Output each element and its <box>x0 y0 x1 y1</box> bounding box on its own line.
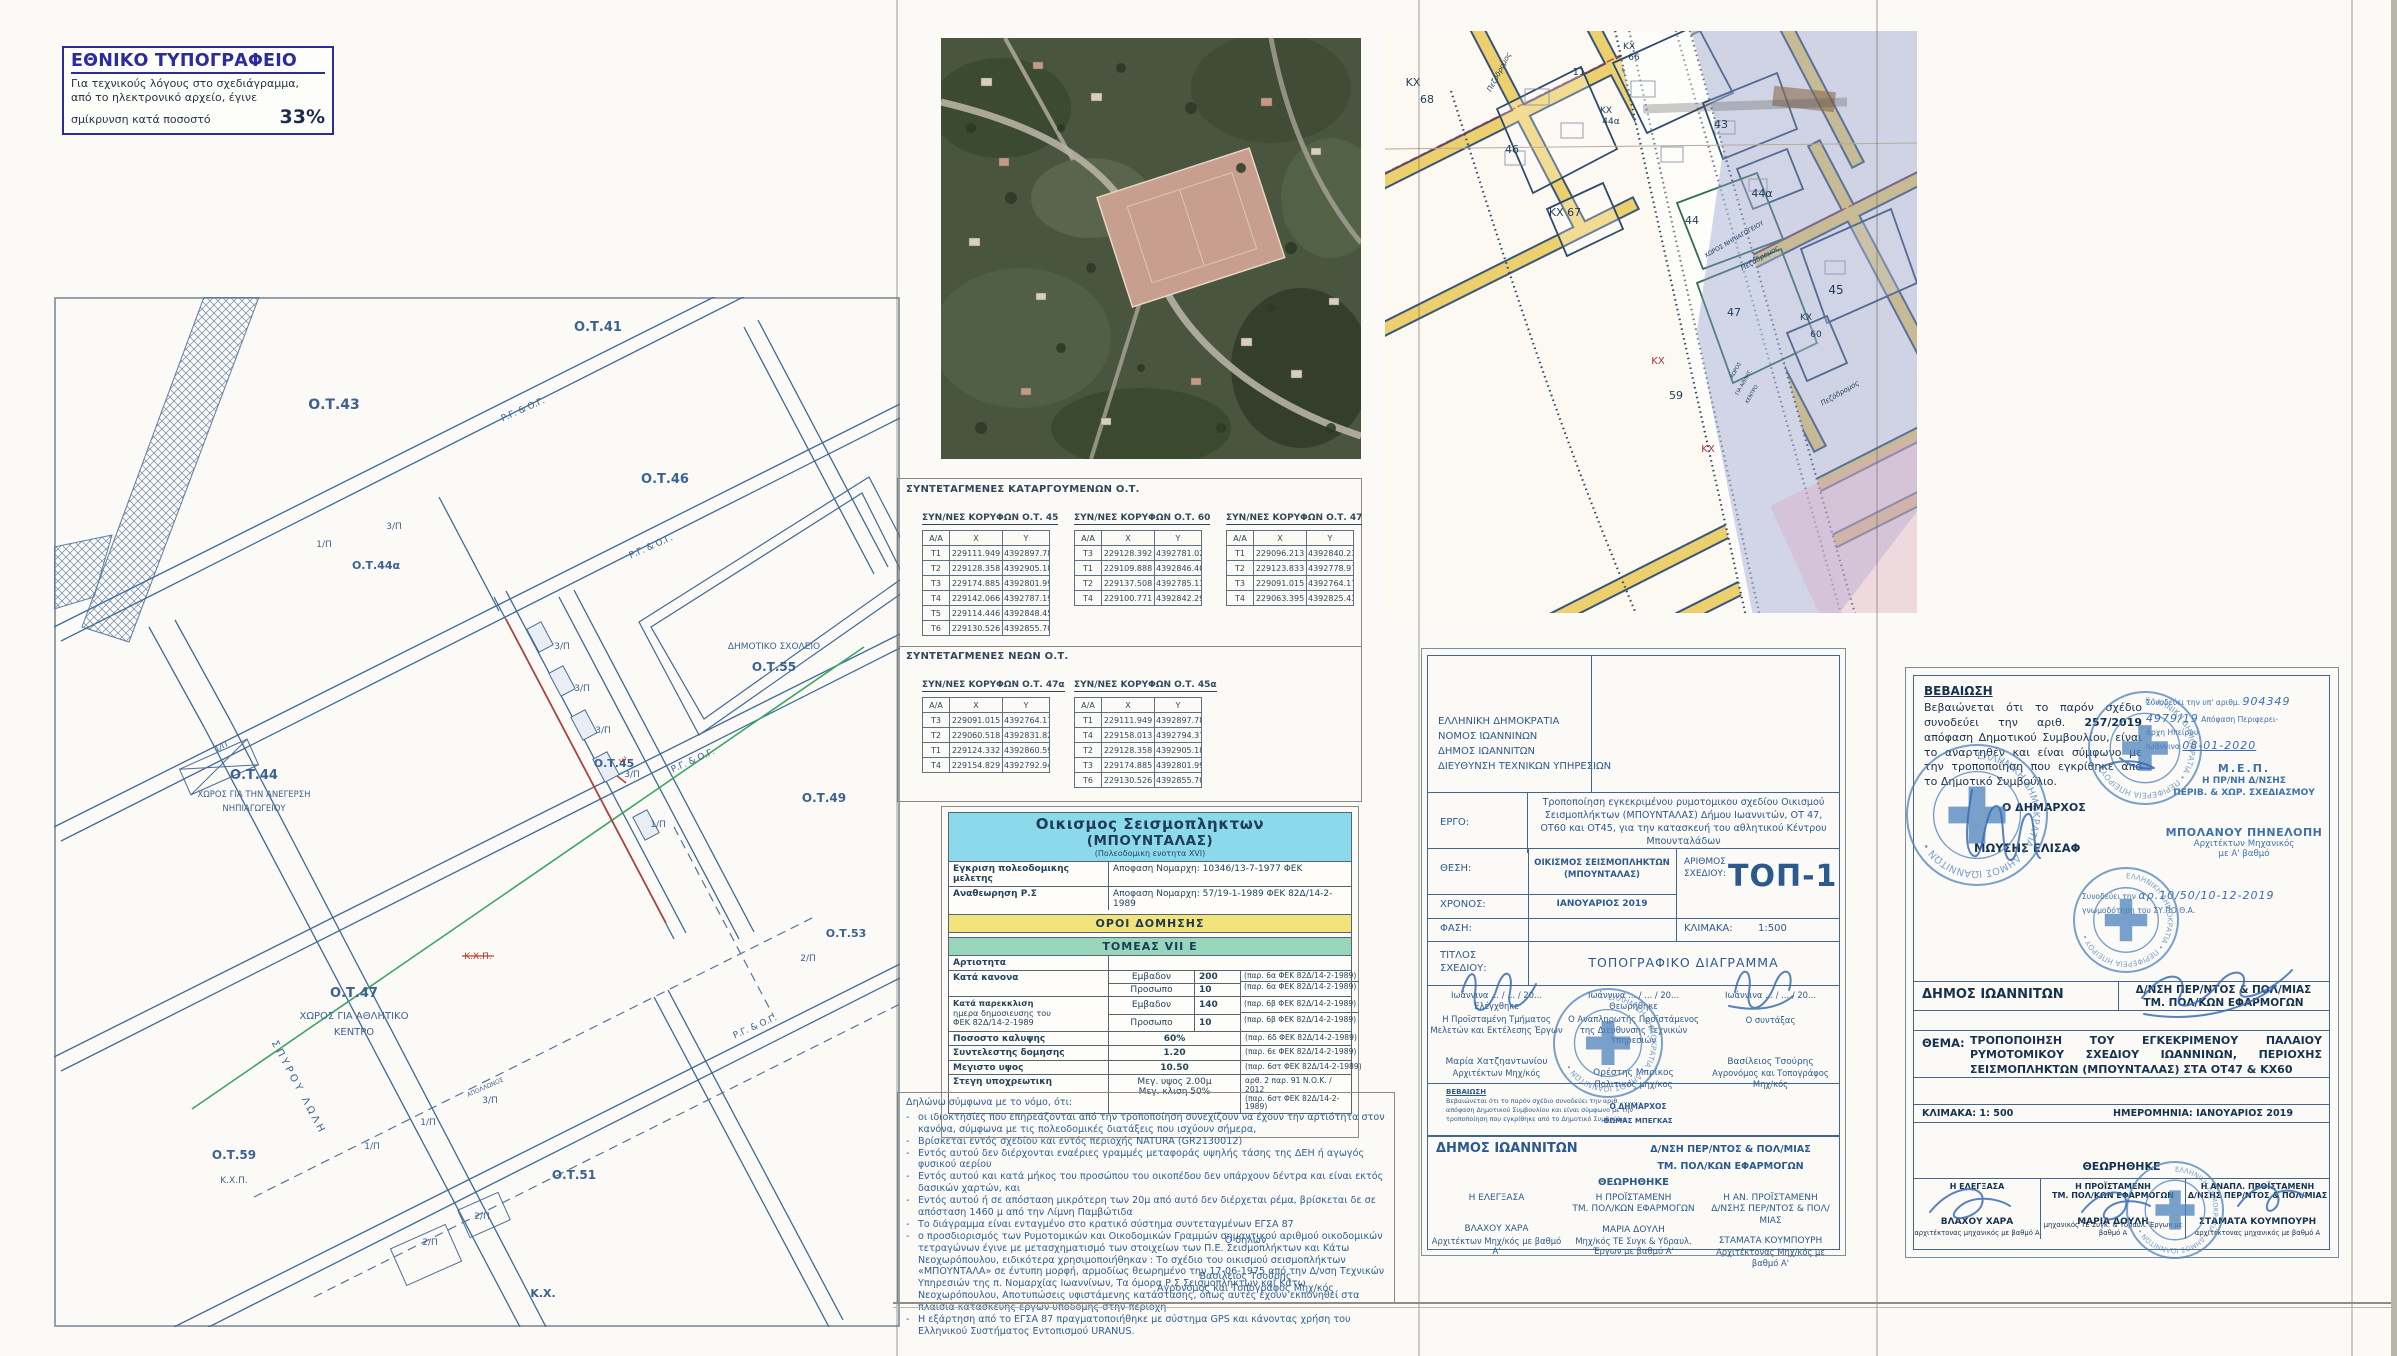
aerial-photo <box>941 38 1361 459</box>
coordinate-table: ΣΥΝ/ΝΕΣ ΚΟΡΥΦΩΝ Ο.Τ. 45αΑ/ΑΧΥΤ1229111.94… <box>1074 672 1202 788</box>
map-label: 1/Π <box>316 540 332 550</box>
title-block: ΕΛΛΗΝΙΚΗ ΔΗΜΟΚΡΑΤΙΑ ΝΟΜΟΣ ΙΩΑΝΝΙΝΩΝ ΔΗΜΟ… <box>1427 655 1840 1250</box>
map-label: Ο.Τ.51 <box>552 1168 596 1182</box>
mep-role: Η ΠΡ/ΝΗ Δ/ΝΣΗΣ <box>2169 776 2319 788</box>
drawing-number-label: ΑΡΙΘΜΟΣ <box>1684 857 1726 869</box>
map-label: 2/Π <box>474 1212 490 1222</box>
project-text: Τροποποίηση εγκεκριμένου ρυμοτομικου σχε… <box>1528 793 1839 853</box>
map-label: Ο.Τ.49 <box>802 791 846 805</box>
coordinate-row: Τ3229174.8854392801.991 <box>1075 758 1202 773</box>
certification-block: ΒΕΒΑΙΩΣΗ Βεβαιώνεται ότι το παρόν σχέδιο… <box>1913 675 2330 1250</box>
region-note-number: 904349 <box>2243 695 2291 708</box>
map-label: 66 <box>1628 53 1640 63</box>
kanona-value-2: 10 <box>1195 984 1240 996</box>
certification-text: απόφαση Δημοτικού Συμβουλίου, είναι το α… <box>1924 731 2142 789</box>
declaration-bullet: -Εντός αυτού δεν διέρχονται εναέριες γρα… <box>906 1148 1386 1172</box>
map-label: ΚΧ <box>1600 106 1612 116</box>
terms-band: ΟΡΟΙ ΔΟΜΗΣΗΣ <box>949 914 1351 933</box>
map-label: ΣΠΥΡΟΥ ΛΩΛΗ <box>269 1039 328 1137</box>
agency-block: ΕΛΛΗΝΙΚΗ ΔΗΜΟΚΡΑΤΙΑ ΝΟΜΟΣ ΙΩΑΝΝΙΝΩΝ ΔΗΜΟ… <box>1438 714 1611 774</box>
declarant-title: Αγρονόμος και Τοπογράφος Μηχ/κός <box>1157 1283 1334 1295</box>
approval-label: Εγκριση πολεοδομικης μελετης <box>949 862 1109 886</box>
parekklisi-label-3: ΦΕΚ 82Δ/14-2-1989 <box>953 1018 1104 1027</box>
coverage-value: 60% <box>1109 1032 1241 1045</box>
map-label: Ο.Τ.46 <box>641 472 689 487</box>
map-label: Κ.Χ. <box>530 1287 555 1300</box>
opinion-text: γνωμοδότηση του ΣΥ.ΠΟ.Θ.Α. <box>2082 905 2312 916</box>
green-boundary-line <box>192 647 864 1109</box>
parekklisi-value-2: 10 <box>1195 1015 1240 1031</box>
map-label: Κ.Χ.Π. <box>220 1176 247 1186</box>
opinion-text: Συνοδεύει την <box>2082 892 2136 901</box>
approver-name: ΒΛΑΧΟΥ ΧΑΡΑ <box>1914 1217 2040 1227</box>
agency-line: ΔΙΕΥΘΥΝΣΗ ΤΕΧΝΙΚΩΝ ΥΠΗΡΕΣΙΩΝ <box>1438 759 1611 774</box>
kanona-cite-1: (παρ. 6α ΦΕΚ 82Δ/14-2-1989) <box>1241 971 1359 983</box>
coverage-label: Ποσοστο καλυψης <box>949 1032 1109 1045</box>
coordinate-table: ΣΥΝ/ΝΕΣ ΚΟΡΥΦΩΝ Ο.Τ. 47Α/ΑΧΥΤ1229096.213… <box>1226 505 1354 636</box>
region-note-text: Συνοδεύει την υπ' αριθμ. <box>2146 698 2240 707</box>
map-label: 1/Π <box>364 1142 380 1152</box>
map-label: Ο.Τ.44 <box>230 768 278 783</box>
settlement-title: Οικισμος Σεισμοπληκτων <box>949 815 1351 833</box>
coordinate-row: Τ4229142.0664392787.194 <box>923 591 1050 606</box>
sig-status: Θεωρήθηκε <box>1565 1001 1702 1012</box>
mayor-label-small: Ο ΔΗΜΑΡΧΟΣ <box>1578 1102 1698 1111</box>
location-text: (ΜΠΟΥΝΤΑΛΑΣ) <box>1528 869 1676 881</box>
mep-block: Μ.Ε.Π. Η ΠΡ/ΝΗ Δ/ΝΣΗΣ ΠΕΡΙΒ. & ΧΩΡ. ΣΧΕΔ… <box>2169 762 2319 800</box>
dashed-block-lines <box>254 827 900 1297</box>
directorate-name: Δ/ΝΣΗ ΠΕΡ/ΝΤΟΣ & ΠΟΛ/ΜΙΑΣ <box>2118 984 2329 997</box>
approver-role: Δ/ΝΣΗΣ ΠΕΡ/ΝΤΟΣ & ΠΟΛ/ΜΙΑΣ <box>1702 1204 1839 1227</box>
project-label: ΕΡΓΟ: <box>1428 793 1528 853</box>
declaration-bullet: -οι ιδιοκτησίες που επηρεάζονται από την… <box>906 1112 1386 1136</box>
coordinate-table: ΣΥΝ/ΝΕΣ ΚΟΡΥΦΩΝ Ο.Τ. 45Α/ΑΧΥΤ1229111.949… <box>922 505 1050 636</box>
date-label: ΧΡΟΝΟΣ: <box>1440 899 1486 910</box>
fold-line <box>2351 0 2353 1356</box>
declaration-bullet: -Εντός αυτού ή σε απόσταση μικρότερη των… <box>906 1195 1386 1219</box>
sig-title: Αρχιτέκτων Μηχ/κός <box>1428 1068 1565 1079</box>
build-factor-label: Συντελεστης δομησης <box>949 1046 1109 1059</box>
coverage-cite: (παρ. 6δ ΦΕΚ 82Δ/14-2-1989) <box>1241 1032 1361 1045</box>
map-label: 44 <box>1685 214 1699 227</box>
approval-value: Αποφαση Νομαρχη: 10346/13-7-1977 ΦΕΚ <box>1109 862 1351 886</box>
map-label: 11 <box>1573 67 1586 78</box>
region-note-city: Ιωάννινα <box>2146 742 2180 751</box>
scale-label: ΚΛΙΜΑΚΑ: <box>1684 923 1733 934</box>
approver-role: Η ΠΡΟΪΣΤΑΜΕΝΗ <box>2041 1182 2185 1191</box>
new-blocks-title: ΣΥΝΤΕΤΑΓΜΕΝΕΣ ΝΕΩΝ Ο.Τ. <box>906 651 1068 662</box>
revision-value: Αποφαση Νομαρχη: 57/19-1-1989 ΦΕΚ 82Δ/14… <box>1109 887 1351 911</box>
max-height-label: Μεγιστο υψος <box>949 1061 1109 1074</box>
map-label: Ο.Τ.43 <box>308 397 360 413</box>
approver-title: Αρχιτέκτων Μηχ/κός με βαθμό Α' <box>1428 1236 1565 1257</box>
map-label: Ο.Τ.47 <box>330 986 378 1001</box>
map-label: ΚΧ 67 <box>1549 206 1581 219</box>
coordinate-row: Τ1229109.8884392846.400 <box>1075 561 1202 576</box>
sig-role: Μελετών και Εκτέλεσης Έργων <box>1428 1025 1565 1036</box>
sig-place: Ιωάννινα ... / ... / 20... <box>1428 990 1565 1001</box>
drawing-title-label: ΤΙΤΛΟΣ <box>1440 949 1487 962</box>
mayor-label: Ο ΔΗΜΑΡΧΟΣ <box>2002 801 2086 814</box>
sig-status: Ελέγχθηκε <box>1428 1001 1565 1012</box>
coordinate-row: Τ2229128.3584392905.187 <box>923 561 1050 576</box>
subject-label: ΘΕΜΑ: <box>1922 1036 1965 1050</box>
declaration-bullet: -Βρίσκεται εντός σχεδίου και εντός περιο… <box>906 1136 1386 1148</box>
mayor-name: ΜΩΥΣΗΣ ΕΛΙΣΑΦ <box>1974 841 2080 855</box>
agency-line: ΝΟΜΟΣ ΙΩΑΝΝΙΝΩΝ <box>1438 729 1611 744</box>
coordinate-table-title: ΣΥΝ/ΝΕΣ ΚΟΡΥΦΩΝ Ο.Τ. 45α <box>1074 680 1217 692</box>
declaration-signature-block: Ο δηλών Βασιλειος Τσούρης Αγρονόμος και … <box>1157 1235 1334 1295</box>
declaration-bullet: -Η εξάρτηση από το ΕΓΣΑ 87 πραγματοποιήθ… <box>906 1314 1386 1338</box>
reduction-stamp-title: ΕΘΝΙΚΟ ΤΥΠΟΓΡΑΦΕΙΟ <box>71 51 325 74</box>
small-cert-title: ΒΕΒΑΙΩΣΗ <box>1446 1088 1642 1097</box>
coordinate-row: Τ4229100.7714392842.290 <box>1075 591 1202 606</box>
region-note-number2: 4979/19 <box>2146 712 2199 725</box>
approver-role: Η ΕΛΕΓΞΑΣΑ <box>1914 1182 2040 1191</box>
architect-title: με Α' βαθμό <box>2154 849 2334 859</box>
coordinate-row: Τ2229123.8334392778.974 <box>1227 561 1354 576</box>
sig-place: Ιωάννινα ... / ... / 20... <box>1702 990 1839 1001</box>
coordinate-table-title: ΣΥΝ/ΝΕΣ ΚΟΡΥΦΩΝ Ο.Τ. 47 <box>1226 513 1362 525</box>
map-label: 3/Π <box>595 726 611 736</box>
map-label: 3/Π <box>386 522 402 532</box>
approved-label: ΘΕΩΡΗΘΗΚΕ <box>1428 1177 1839 1188</box>
map-label: 46 <box>1505 143 1519 156</box>
sig-role: Ο συντάξας <box>1702 1015 1839 1026</box>
map-label: 59 <box>1669 389 1683 402</box>
surveyor-declaration: Δηλώνω σύμφωνα με το νόμο, ότι: -οι ιδιο… <box>897 1092 1395 1304</box>
coordinate-table-title: ΣΥΝ/ΝΕΣ ΚΟΡΥΦΩΝ Ο.Τ. 45 <box>922 513 1058 525</box>
coordinate-table: ΣΥΝ/ΝΕΣ ΚΟΡΥΦΩΝ Ο.Τ. 60Α/ΑΧΥΤ3229128.392… <box>1074 505 1202 636</box>
approver-name: ΜΑΡΙΑ ΔΟΥΛΗ <box>1565 1225 1702 1236</box>
agency-line: ΕΛΛΗΝΙΚΗ ΔΗΜΟΚΡΑΤΙΑ <box>1438 714 1611 729</box>
location-label: ΘΕΣΗ: <box>1440 863 1471 874</box>
mep-title: Μ.Ε.Π. <box>2169 762 2319 776</box>
decision-number: 257/2019 <box>2084 716 2142 729</box>
map-label: Ο.Τ.44α <box>352 559 401 572</box>
approved-label: ΘΕΩΡΗΘΗΚΕ <box>1914 1160 2329 1173</box>
mayor-name-small: ΘΩΜΑΣ ΜΠΕΓΚΑΣ <box>1578 1117 1698 1125</box>
map-label: 60 <box>1810 330 1822 340</box>
approver-title: μηχανικός ΤΕ Συγκ. & Υδραυλ. Έργων με βα… <box>2041 1221 2185 1237</box>
certification-title: ΒΕΒΑΙΩΣΗ <box>1924 684 2142 698</box>
map-label: ΚΧ <box>1800 313 1812 323</box>
map-label: 45 <box>1828 283 1843 297</box>
map-label: 2/Π <box>422 1238 438 1248</box>
architect-title: Αρχιτέκτων Μηχανικός <box>2154 839 2334 849</box>
parekklisi-cite-2: (παρ. 6β ΦΕΚ 82Δ/14-2-1989) <box>1241 1013 1359 1028</box>
reduction-stamp: ΕΘΝΙΚΟ ΤΥΠΟΓΡΑΦΕΙΟ Για τεχνικούς λόγους … <box>62 46 334 135</box>
approver-role: Δ/ΝΣΗΣ ΠΕΡ/ΝΤΟΣ & ΠΟΛ/ΜΙΑΣ <box>2186 1191 2329 1200</box>
planning-unit: (Πολεοδομικη ενοτητα XVI) <box>949 849 1351 858</box>
drawing-number: ΤΟΠ-1 <box>1728 859 1837 894</box>
removed-blocks-tables: ΣΥΝ/ΝΕΣ ΚΟΡΥΦΩΝ Ο.Τ. 45Α/ΑΧΥΤ1229111.949… <box>898 505 1354 636</box>
department-name: ΤΜ. ΠΟΛ/ΚΩΝ ΕΦΑΡΜΟΓΩΝ <box>2118 997 2329 1010</box>
building-terms-table: Οικισμος Σεισμοπληκτων (ΜΠΟΥΝΤΑΛΑΣ) (Πολ… <box>948 812 1352 1114</box>
subject-text: ΤΡΟΠΟΠΟΙΗΣΗ ΤΟΥ ΕΓΚΕΚΡΙΜΕΝΟΥ ΠΑΛΑΙΟΥ ΡΥΜ… <box>1970 1034 2322 1077</box>
declaration-bullet: -Εντός αυτού και κατά μήκος του προσώπου… <box>906 1171 1386 1195</box>
scale-value: ΚΛΙΜΑΚΑ: 1: 500 <box>1922 1108 2013 1119</box>
fold-line <box>896 0 898 1356</box>
map-label: ΚΧ <box>1623 42 1635 52</box>
site-plan-drawing: Ο.Τ.43Ο.Τ.41Ο.Τ.46Ο.Τ.44α1/Π3/ΠΡ.Γ. & Ο.… <box>54 297 900 1327</box>
architect-name: ΜΠΟΛΑΝΟΥ ΠΗΝΕΛΟΠΗ <box>2154 826 2334 839</box>
opinion-annotation: Συνοδεύει την αρ.10/50/10-12-2019 γνωμοδ… <box>2082 888 2312 916</box>
approver-title: Αρχιτέκτονας Μηχ/κός με βαθμό Α' <box>1702 1247 1839 1268</box>
coordinate-row: Τ3229174.8854392801.991 <box>923 576 1050 591</box>
map-label: 68 <box>1420 93 1434 106</box>
map-label: 43 <box>1714 118 1728 131</box>
sig-name: Μαρία Χατζηαντωνίου <box>1428 1057 1565 1068</box>
approver-role: Η ΑΝ. ΠΡΟΪΣΤΑΜΕΝΗ <box>1702 1193 1839 1204</box>
parekklisi-metric-1: Εμβαδον <box>1109 997 1194 1014</box>
fold-line <box>1876 0 1878 1356</box>
map-label: 2/Π <box>800 954 816 964</box>
coordinate-table-title: ΣΥΝ/ΝΕΣ ΚΟΡΥΦΩΝ Ο.Τ. 47α <box>922 680 1065 692</box>
approver-role: Η ΑΝΑΠΛ. ΠΡΟΪΣΤΑΜΕΝΗ <box>2186 1182 2329 1191</box>
sig-role: Η Προϊσταμένη Τμήματος <box>1428 1014 1565 1025</box>
map-label: Ο.Τ.41 <box>574 320 622 335</box>
directorate-name: Δ/ΝΣΗ ΠΕΡ/ΝΤΟΣ & ΠΟΛ/ΜΙΑΣ <box>1628 1141 1833 1158</box>
map-label: Κ.Χ.Π. <box>464 952 491 962</box>
parekklisi-cite-1: (παρ. 6β ΦΕΚ 82Δ/14-2-1989) <box>1241 997 1359 1013</box>
municipality-name: ΔΗΜΟΣ ΙΩΑΝΝΙΤΩΝ <box>1922 987 2064 1002</box>
hatched-road-strip <box>82 297 259 642</box>
approver-role: ΤΜ. ΠΟΛ/ΚΩΝ ΕΦΑΡΜΟΓΩΝ <box>2041 1191 2185 1200</box>
map-label: ΝΗΠΙΑΓΩΓΕΙΟΥ <box>222 804 286 814</box>
coordinate-row: Τ3229091.0154392764.177 <box>923 713 1050 728</box>
sheet-bottom-line <box>893 1307 2391 1308</box>
region-note-date: 08-01-2020 <box>2182 739 2256 752</box>
coordinate-row: Τ6229130.5264392855.705 <box>923 621 1050 636</box>
approver-title: αρχιτέκτονας μηχανικός με βαθμό Α <box>1914 1229 2040 1237</box>
sig-name: Βασίλειος Τσούρης <box>1702 1057 1839 1068</box>
coordinate-row: Τ1229124.3324392860.591 <box>923 743 1050 758</box>
scale-value: 1:500 <box>1758 923 1787 934</box>
coordinate-table: ΣΥΝ/ΝΕΣ ΚΟΡΥΦΩΝ Ο.Τ. 47αΑ/ΑΧΥΤ3229091.01… <box>922 672 1050 788</box>
site-plan-map: Ο.Τ.43Ο.Τ.41Ο.Τ.46Ο.Τ.44α1/Π3/ΠΡ.Γ. & Ο.… <box>54 297 900 1327</box>
old-approved-plan-map: ΚΧ68ΚΧ6611ΚΧ44α4346ΚΧ 6744α44ΧΩΡΟΣ ΝΗΠΙΑ… <box>1385 31 1917 613</box>
declarant-name: Βασιλειος Τσούρης <box>1157 1271 1334 1283</box>
phase-label: ΦΑΣΗ: <box>1440 923 1472 934</box>
coordinate-row: Τ2229060.5184392831.820 <box>923 728 1050 743</box>
roof-height: Μεγ. υψος 2.00μ <box>1113 1077 1236 1087</box>
map-label: ΔΗΜΟΤΙΚΟ ΣΧΟΛΕΙΟ <box>728 642 820 652</box>
coordinate-row: Τ4229154.8294392792.948 <box>923 758 1050 773</box>
coordinate-row: Τ1229096.2134392840.235 <box>1227 546 1354 561</box>
sheet-edge <box>2391 0 2397 1356</box>
coordinate-row: Τ2229137.5084392785.139 <box>1075 576 1202 591</box>
approver-role: Η ΠΡΟΪΣΤΑΜΕΝΗ <box>1565 1193 1702 1204</box>
map-label: Ρ.Γ. & Ο.Γ. <box>628 533 675 561</box>
sheet-bottom-line <box>893 1302 2391 1304</box>
map-label: 44α <box>1602 117 1619 127</box>
reduction-percent: 33% <box>280 106 325 128</box>
revision-label: Αναθεωρηση Ρ.Σ <box>949 887 1109 911</box>
coordinate-row: Τ5229114.4464392848.455 <box>923 606 1050 621</box>
kanona-metric-1: Εμβαδον <box>1109 971 1194 984</box>
coordinate-row: Τ1229111.9494392897.789 <box>1075 713 1202 728</box>
coordinate-row: Τ3229091.0154392764.177 <box>1227 576 1354 591</box>
sig-name: Ορέστης Μπρίκος <box>1565 1068 1702 1079</box>
map-label: 1/Π <box>650 820 666 830</box>
approver-title: Μηχ/κός ΤΕ Συγκ & Υδραυλ. Έργων με βαθμό… <box>1565 1236 1702 1257</box>
coordinate-row: Τ1229111.9494392897.789 <box>923 546 1050 561</box>
map-label: Ο.Τ.55 <box>752 660 796 674</box>
map-label: ΚΧ <box>1651 356 1665 367</box>
sig-col-approved: Ιωάννινα ... / ... / 20... Θεωρήθηκε Ο Α… <box>1565 990 1702 1089</box>
agency-line: ΔΗΜΟΣ ΙΩΑΝΝΙΤΩΝ <box>1438 744 1611 759</box>
map-label: Ο.Τ.53 <box>826 927 867 940</box>
approver-name: ΣΤΑΜΑΤΑ ΚΟΥΜΠΟΥΡΗ <box>2186 1217 2329 1227</box>
approver-title: αρχιτέκτονας μηχανικός με βαθμό Α <box>2186 1229 2329 1237</box>
map-label: 1/Π <box>420 1118 436 1128</box>
map-label: 3/Π <box>624 770 640 780</box>
region-note-text: άρχη Ηπείρου <box>2146 727 2326 738</box>
kanona-cite-2: (παρ. 6α ΦΕΚ 82Δ/14-2-1989) <box>1241 982 1359 993</box>
department-name: ΤΜ. ΠΟΛ/ΚΩΝ ΕΦΑΡΜΟΓΩΝ <box>1628 1158 1833 1175</box>
coordinates-section: ΣΥΝΤΕΤΑΓΜΕΝΕΣ ΚΑΤΑΡΓΟΥΜΕΝΩΝ Ο.Τ. ΣΥΝ/ΝΕΣ… <box>897 478 1362 802</box>
drawing-number-label: ΣΧΕΔΙΟΥ: <box>1684 869 1726 881</box>
reduction-stamp-line2: από το ηλεκτρονικό αρχείο, έγινε <box>71 91 325 105</box>
building-footprints <box>390 622 659 1286</box>
coordinate-row: Τ3229128.3924392781.029 <box>1075 546 1202 561</box>
new-blocks-tables: ΣΥΝ/ΝΕΣ ΚΟΡΥΦΩΝ Ο.Τ. 47αΑ/ΑΧΥΤ3229091.01… <box>898 672 1202 788</box>
coordinate-row: Τ4229158.0134392794.376 <box>1075 728 1202 743</box>
map-label: 47 <box>1727 306 1741 319</box>
map-label: ΚΕΝΤΡΟ <box>334 1027 374 1038</box>
drawing-title-label: ΣΧΕΔΙΟΥ: <box>1440 962 1487 975</box>
opinion-number: αρ.10/50/10-12-2019 <box>2138 889 2274 902</box>
map-label: 3/Π <box>482 1096 498 1106</box>
sig-role: της Διεύθυνσης Τεχνικών Υπηρεσιών <box>1565 1025 1702 1046</box>
max-height-value: 10.50 <box>1109 1061 1241 1074</box>
coordinate-row: Τ4229063.3954392825.439 <box>1227 591 1354 606</box>
coordinate-row: Τ2229128.3584392905.187 <box>1075 743 1202 758</box>
certification-text-block: ΒΕΒΑΙΩΣΗ Βεβαιώνεται ότι το παρόν σχέδιο… <box>1924 684 2142 790</box>
municipality-name: ΔΗΜΟΣ ΙΩΑΝΝΙΤΩΝ <box>1436 1141 1578 1156</box>
parekklisi-value-1: 140 <box>1195 997 1240 1014</box>
approver-name: ΒΛΑΧΟΥ ΧΑΡΑ <box>1428 1224 1565 1235</box>
build-factor-value: 1.20 <box>1109 1046 1241 1059</box>
declarant-label: Ο δηλών <box>1157 1235 1334 1247</box>
coordinate-row: Τ6229130.5264392855.705 <box>1075 773 1202 788</box>
kanona-label: Κατά κανονα <box>949 971 1109 997</box>
parekklisi-metric-2: Προσωπο <box>1109 1015 1194 1031</box>
location-text: ΟΙΚΙΣΜΟΣ ΣΕΙΣΜΟΠΛΗΚΤΩΝ <box>1528 857 1676 869</box>
map-label: 1/Π <box>213 740 229 754</box>
settlement-name: (ΜΠΟΥΝΤΑΛΑΣ) <box>949 833 1351 849</box>
approver-role: ΤΜ. ΠΟΛ/ΚΩΝ ΕΦΑΡΜΟΓΩΝ <box>1565 1204 1702 1215</box>
max-height-cite: (παρ. 6στ ΦΕΚ 82Δ/14-2-1989) <box>1241 1061 1366 1074</box>
sig-place: Ιωάννινα ... / ... / 20... <box>1565 990 1702 1001</box>
declaration-bullet: -Το διάγραμμα είναι ενταγμένο στο κρατικ… <box>906 1219 1386 1231</box>
drawing-title: ΤΟΠΟΓΡΑΦΙΚΟ ΔΙΑΓΡΑΜΜΑ <box>1528 955 1839 970</box>
sig-col-author: Ιωάννινα ... / ... / 20... Ο συντάξας Βα… <box>1702 990 1839 1089</box>
reduction-stamp-line1: Για τεχνικούς λόγους στο σχεδιάγραμμα, <box>71 77 325 91</box>
coordinate-table-title: ΣΥΝ/ΝΕΣ ΚΟΡΥΦΩΝ Ο.Τ. 60 <box>1074 513 1210 525</box>
map-label: 3/Π <box>574 684 590 694</box>
date-value: ΙΑΝΟΥΑΡΙΟΣ 2019 <box>1528 899 1676 909</box>
declaration-intro: Δηλώνω σύμφωνα με το νόμο, ότι: <box>906 1097 1386 1109</box>
sig-col-checked: Ιωάννινα ... / ... / 20... Ελέγχθηκε Η Π… <box>1428 990 1565 1089</box>
removed-blocks-title: ΣΥΝΤΕΤΑΓΜΕΝΕΣ ΚΑΤΑΡΓΟΥΜΕΝΩΝ Ο.Τ. <box>906 484 1140 495</box>
map-label: ΧΩΡΟΣ ΓΙΑ ΤΗΝ ΑΝΕΓΕΡΣΗ <box>197 790 310 800</box>
map-label: ΧΩΡΟΣ ΓΙΑ ΑΘΛΗΤΙΚΟ <box>300 1011 409 1022</box>
artiotita-label: Αρτιοτητα <box>949 956 1109 969</box>
sector-band: ΤΟΜΕΑΣ VII Ε <box>949 937 1351 956</box>
fold-line <box>1418 0 1420 1356</box>
map-label: 3/Π <box>554 642 570 652</box>
kanona-value-1: 200 <box>1195 971 1240 984</box>
map-label: 44α <box>1751 187 1772 200</box>
build-factor-cite: (παρ. 6ε ΦΕΚ 82Δ/14-2-1989) <box>1241 1046 1360 1059</box>
approver-role: Η ΕΛΕΓΞΑΣΑ <box>1428 1193 1565 1204</box>
map-label: Ο.Τ.45 <box>594 757 635 770</box>
map-label: Ο.Τ.59 <box>212 1148 256 1162</box>
scanned-planning-document: ΕΘΝΙΚΟ ΤΥΠΟΓΡΑΦΕΙΟ Για τεχνικούς λόγους … <box>0 0 2397 1356</box>
mep-role: ΠΕΡΙΒ. & ΧΩΡ. ΣΧΕΔΙΑΣΜΟΥ <box>2169 788 2319 800</box>
region-architect: ΜΠΟΛΑΝΟΥ ΠΗΝΕΛΟΠΗ Αρχιτέκτων Μηχανικός μ… <box>2154 826 2334 859</box>
reduction-stamp-line3: σμίκρυνση κατά ποσοστό <box>71 113 211 127</box>
sig-role: Ο Αναπληρωτής Προϊστάμενος <box>1565 1014 1702 1025</box>
site-plan-labels: Ο.Τ.43Ο.Τ.41Ο.Τ.46Ο.Τ.44α1/Π3/ΠΡ.Γ. & Ο.… <box>197 320 866 1300</box>
map-label: ΚΧ <box>1701 444 1715 455</box>
date-value: ΗΜΕΡΟΜΗΝΙΑ: ΙΑΝΟΥΑΡΙΟΣ 2019 <box>2113 1108 2293 1119</box>
kanona-metric-2: Προσωπο <box>1109 984 1194 996</box>
approver-name: ΣΤΑΜΑΤΑ ΚΟΥΜΠΟΥΡΗ <box>1702 1236 1839 1247</box>
region-note-text: Απόφαση Περιφερει- <box>2201 715 2278 724</box>
region-annotation: Συνοδεύει την υπ' αριθμ. 904349 4979/19 … <box>2146 694 2326 755</box>
